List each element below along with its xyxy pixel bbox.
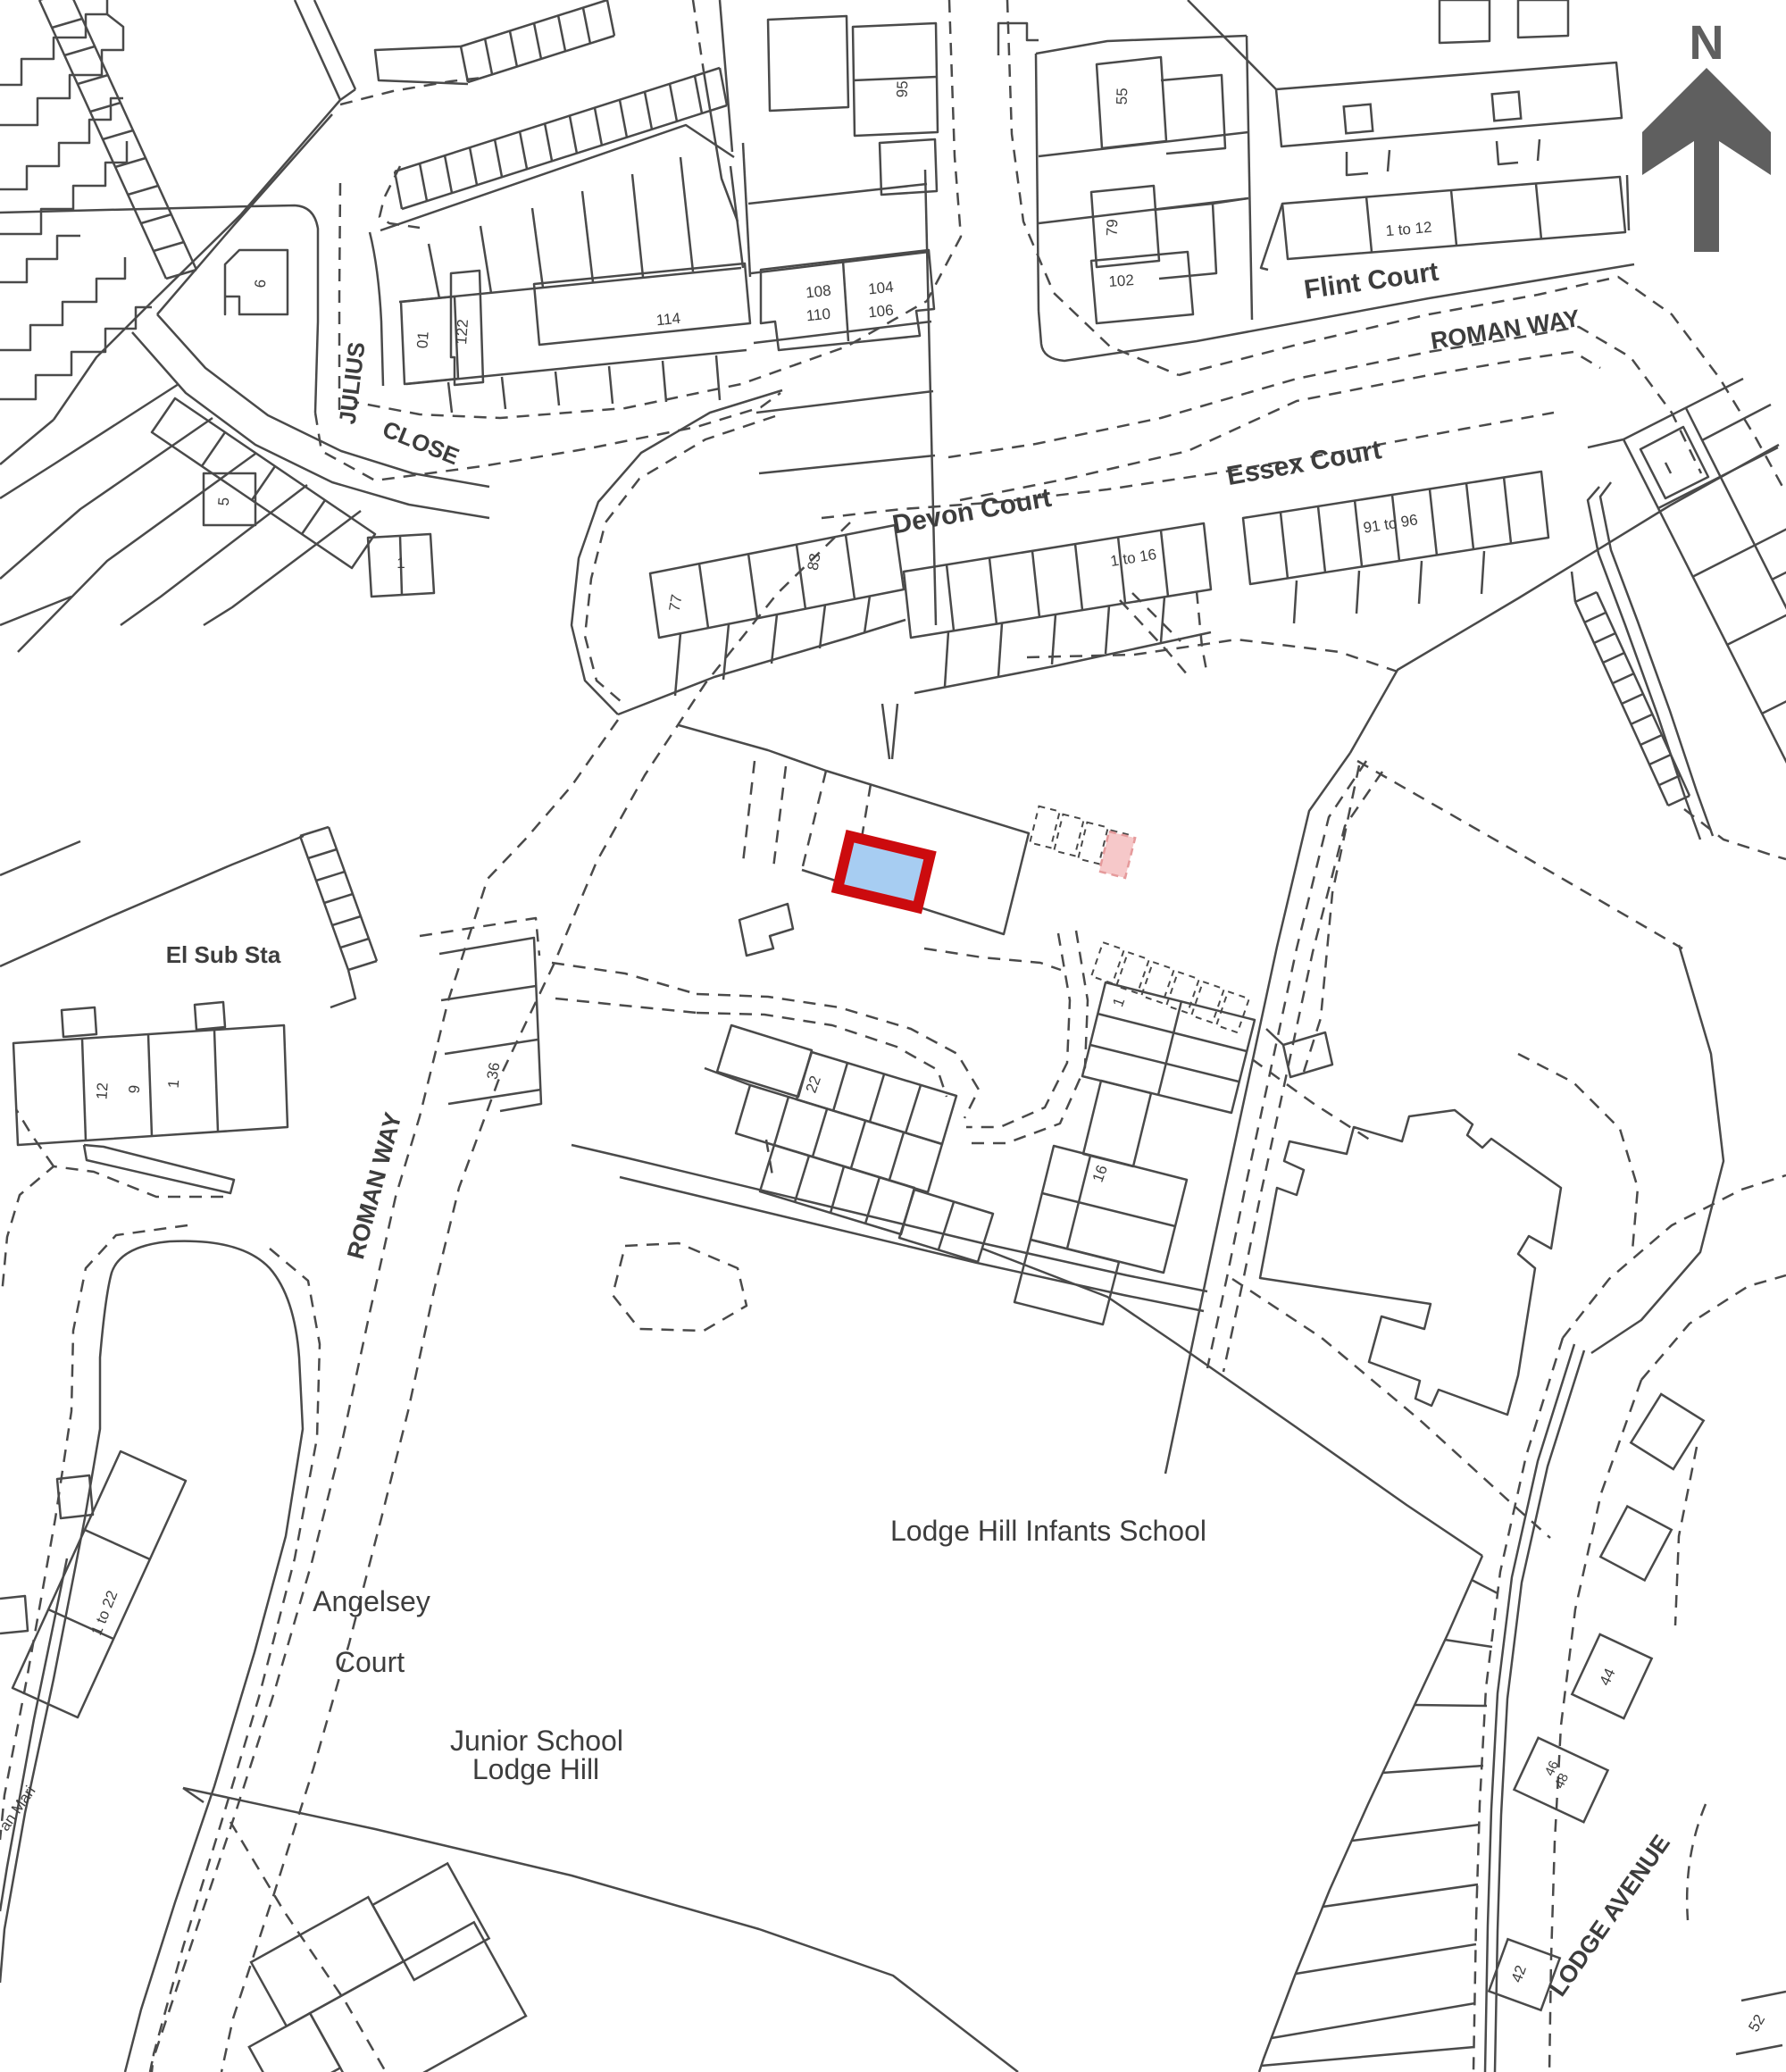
svg-text:77: 77 <box>666 593 686 613</box>
svg-text:El Sub Sta: El Sub Sta <box>166 941 281 968</box>
svg-text:122: 122 <box>453 319 472 346</box>
svg-text:12: 12 <box>93 1082 111 1100</box>
svg-text:1: 1 <box>396 555 405 572</box>
svg-text:1: 1 <box>165 1079 183 1089</box>
svg-text:83: 83 <box>805 552 824 572</box>
svg-text:N: N <box>1690 16 1724 70</box>
svg-text:Lodge Hill: Lodge Hill <box>472 1753 599 1785</box>
svg-text:79: 79 <box>1104 219 1122 237</box>
svg-text:55: 55 <box>1114 88 1131 105</box>
svg-text:Junior School: Junior School <box>450 1725 623 1757</box>
svg-text:01: 01 <box>413 331 431 349</box>
svg-text:Angelsey: Angelsey <box>313 1585 430 1617</box>
svg-text:Lodge Hill Infants School: Lodge Hill Infants School <box>890 1515 1206 1547</box>
svg-text:9: 9 <box>126 1084 144 1094</box>
svg-text:Court: Court <box>335 1646 405 1678</box>
svg-text:95: 95 <box>894 80 912 98</box>
svg-text:6: 6 <box>252 279 270 288</box>
svg-text:108: 108 <box>805 282 831 302</box>
svg-text:5: 5 <box>215 497 233 506</box>
svg-text:110: 110 <box>805 305 831 325</box>
svg-text:106: 106 <box>867 302 894 322</box>
svg-text:102: 102 <box>1108 272 1135 290</box>
svg-text:104: 104 <box>867 279 894 298</box>
svg-text:36: 36 <box>484 1061 504 1081</box>
svg-text:114: 114 <box>655 310 681 330</box>
